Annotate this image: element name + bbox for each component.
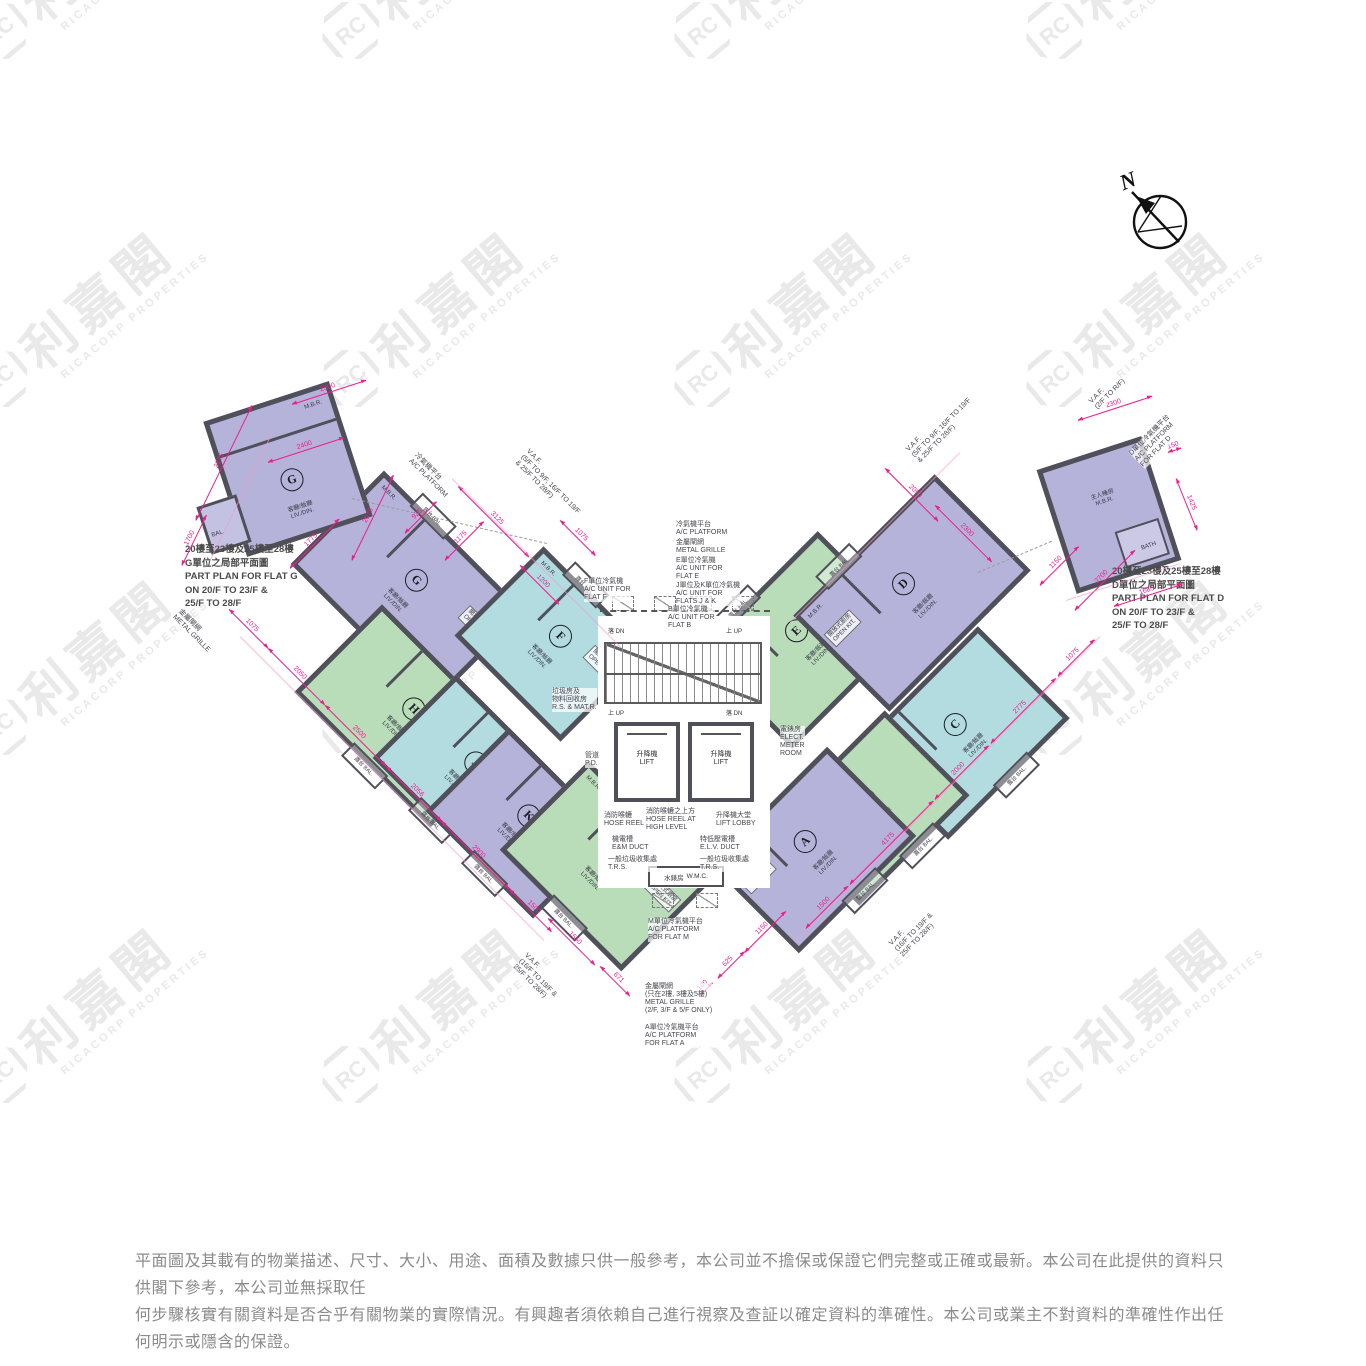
annotation-line: 金屬閘網	[645, 983, 712, 991]
annotation-line: 金屬閘網	[676, 539, 725, 547]
annotation-line: (2/F, 3/F & 5/F ONLY)	[645, 1007, 712, 1015]
annotation: V.A.F.(5/F TO 9/F, 16/F TO 19/F& 25/F TO…	[905, 391, 979, 465]
annotation-line: FLAT E	[676, 573, 723, 581]
annotation-line: METER	[780, 742, 805, 750]
annotation-line: LIFT LOBBY	[716, 820, 756, 828]
annotation-line: 電錶房	[780, 726, 805, 734]
annotation: V.A.F.(16/F TO 19/F &25/F TO 28/F)	[888, 906, 941, 959]
annotation-line: 垃圾房及	[552, 688, 597, 696]
annotation: 特低壓電槽E.L.V. DUCT	[700, 836, 740, 852]
annotation: 一般垃圾收集處T.R.S.	[700, 856, 749, 872]
annotation-line: M單位冷氣機平台	[648, 918, 703, 926]
annotation: 一般垃圾收集處T.R.S.	[608, 856, 657, 872]
annotation-line: A/C PLATFORM	[645, 1032, 699, 1040]
annotation-line: FLAT B	[668, 622, 715, 630]
annotation-line: 物料回收房	[552, 696, 597, 704]
annotation: 冷氣機平台A/C PLATFORM	[676, 521, 727, 537]
annotation-line: HOSE REEL	[604, 820, 644, 828]
annotation: V.A.F.(16/F TO 19/F &25/F TO 28/F)	[511, 952, 564, 1005]
annotation-line: 消防喉轆之上方	[646, 808, 696, 816]
annotation-line: METAL GRILLE	[645, 999, 712, 1007]
annotation-line: 一般垃圾收集處	[608, 856, 657, 864]
annotation-line: 冷氣機平台	[676, 521, 727, 529]
annotation: F單位冷氣機A/C UNIT FORFLAT F	[584, 578, 631, 602]
annotation-line: ROOM	[780, 750, 805, 758]
annotation-line: A/C UNIT FOR	[676, 565, 723, 573]
annotation: A單位冷氣機平台A/C PLATFORMFOR FLAT A	[645, 1024, 699, 1048]
annotation-line: A/C PLATFORM	[648, 926, 703, 934]
floor-plan-page: RC利嘉閣RICACORP PROPERTIESRC利嘉閣RICACORP PR…	[0, 0, 1366, 1366]
north-arrow: N	[1112, 166, 1198, 262]
annotation: 垃圾房及物料回收房R.S. & MAT.R.	[552, 688, 597, 712]
disclaimer-cn-line: 何步驟核實有關資料是否合乎有關物業的實際情況。有興趣者須依賴自己進行視察及查証以…	[135, 1302, 1237, 1356]
annotation: 消防喉轆之上方HOSE REEL ATHIGH LEVEL	[646, 808, 696, 832]
annotation-line: 特低壓電槽	[700, 836, 740, 844]
annotation-line: (5/F TO 9/F, 16/F TO 19/F	[519, 454, 582, 517]
annotation: 管道P.D.	[585, 752, 599, 768]
annotation: E單位冷氣機A/C UNIT FORFLAT E	[676, 557, 723, 581]
annotation-line: HIGH LEVEL	[646, 824, 696, 832]
annotation-line: J單位及K單位冷氣機	[676, 582, 740, 590]
annotation-line: A/C UNIT FOR	[676, 590, 740, 598]
annotation-line: T.R.S.	[700, 864, 749, 872]
annotation: 升降機大堂LIFT LOBBY	[716, 812, 756, 828]
annotation-line: A/C UNIT FOR	[584, 586, 631, 594]
annotation-line: HOSE REEL AT	[646, 816, 696, 824]
annotation: 電錶房ELECT.METERROOM	[780, 726, 805, 758]
annotation: 冷氣機平台A/C PLATFORM	[407, 452, 455, 500]
annotation-line: R.S. & MAT.R.	[552, 704, 597, 712]
annotation: J單位及K單位冷氣機A/C UNIT FORFLATS J & K	[676, 582, 740, 606]
annotation-line: FOR FLAT A	[645, 1040, 699, 1048]
annotation: 金屬閘網(只在2樓, 3樓及5樓)METAL GRILLE(2/F, 3/F &…	[645, 983, 712, 1015]
annotation-line: B單位冷氣機	[668, 606, 715, 614]
annotation: 金屬閘網METAL GRILLE	[171, 608, 217, 654]
annotation-line: 一般垃圾收集處	[700, 856, 749, 864]
annotation-line: E&M DUCT	[612, 844, 649, 852]
annotation-line: FLATS J & K	[676, 598, 740, 606]
annotation-line: 管道	[585, 752, 599, 760]
annotation-line: METAL GRILLE	[676, 547, 725, 555]
annotation: V.A.F.(5/F TO 9/F, 16/F TO 19/F& 25/F TO…	[513, 448, 587, 522]
annotation-line: ELECT.	[780, 734, 805, 742]
annotation: 消防喉轆HOSE REEL	[604, 812, 644, 828]
annotation-line: E.L.V. DUCT	[700, 844, 740, 852]
annotation-line: T.R.S.	[608, 864, 657, 872]
annotation: 金屬閘網METAL GRILLE	[676, 539, 725, 555]
annotation-line: 消防喉轆	[604, 812, 644, 820]
annotation: D單位冷氣機平台A/C PLATFORMFOR FLAT D	[1128, 414, 1183, 469]
annotation-line: A/C PLATFORM	[676, 529, 727, 537]
annotation: 機電槽E&M DUCT	[612, 836, 649, 852]
annotation-line: A單位冷氣機平台	[645, 1024, 699, 1032]
annotation-line: P.D.	[585, 760, 599, 768]
annotation-line: 升降機大堂	[716, 812, 756, 820]
annotation-line: (5/F TO 9/F, 16/F TO 19/F	[911, 397, 974, 460]
annotation-line: A/C UNIT FOR	[668, 614, 715, 622]
disclaimer: 平面圖及其載有的物業描述、尺寸、大小、用途、面積及數據只供一般參考，本公司並不擔…	[135, 1248, 1237, 1366]
annotation: V.A.F.(2/F TO R/F)	[1088, 372, 1127, 411]
annotation-line: (只在2樓, 3樓及5樓)	[645, 991, 712, 999]
annotation-line: FOR FLAT M	[648, 934, 703, 942]
annotation: B單位冷氣機A/C UNIT FORFLAT B	[668, 606, 715, 630]
annotation-line: F單位冷氣機	[584, 578, 631, 586]
annotation-line: E單位冷氣機	[676, 557, 723, 565]
annotation-line: FLAT F	[584, 594, 631, 602]
disclaimer-cn-line: 平面圖及其載有的物業描述、尺寸、大小、用途、面積及數據只供一般參考，本公司並不擔…	[135, 1248, 1237, 1302]
annotation: M單位冷氣機平台A/C PLATFORMFOR FLAT M	[648, 918, 703, 942]
annotation-line: 機電槽	[612, 836, 649, 844]
